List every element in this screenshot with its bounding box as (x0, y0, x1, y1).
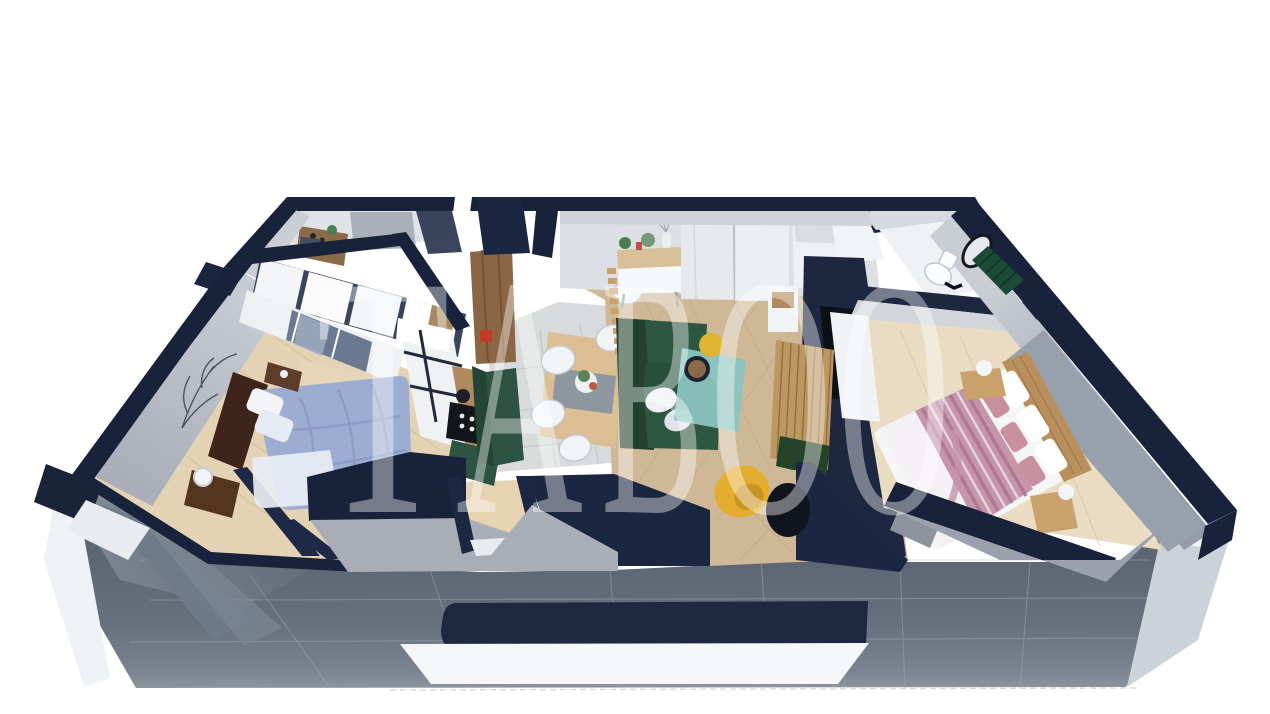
svg-text:A: A (456, 206, 583, 587)
svg-text:T: T (316, 206, 450, 587)
svg-text:O: O (838, 206, 950, 587)
svg-text:B: B (601, 206, 704, 587)
svg-text:O: O (710, 206, 832, 587)
